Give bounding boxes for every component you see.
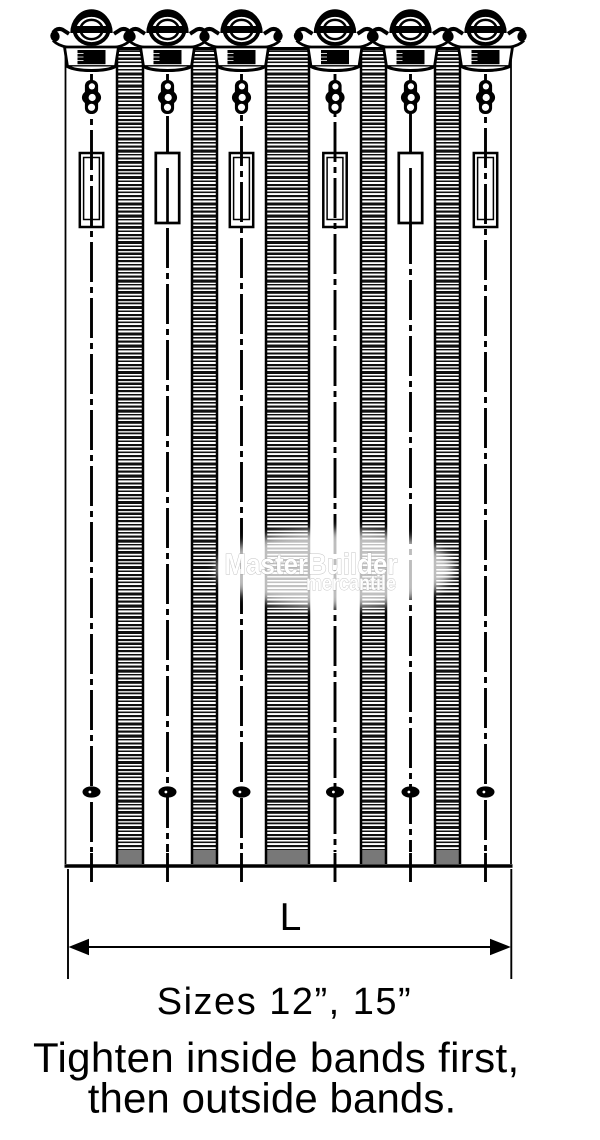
svg-text:then outside bands.: then outside bands.	[88, 1075, 457, 1122]
svg-text:L: L	[280, 896, 302, 939]
svg-text:Sizes 12”, 15”: Sizes 12”, 15”	[157, 981, 412, 1023]
svg-text:mercantile: mercantile	[306, 572, 396, 595]
